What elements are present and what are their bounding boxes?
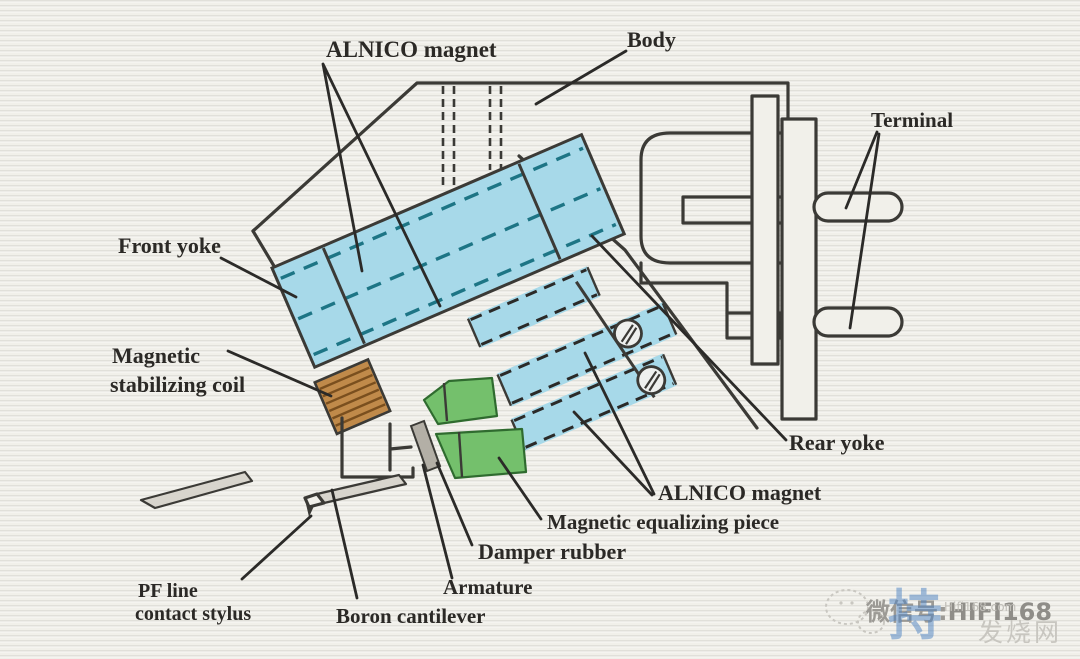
site-url-watermark-text: Hifi168.com (944, 600, 1016, 614)
wechat-bubble-large (826, 590, 868, 624)
magnetic-stabilizing-coil (315, 359, 390, 433)
site-name-text: 发烧网 (978, 618, 1062, 647)
body-left-edge (253, 231, 277, 271)
label-stylus-line2: contact stylus (135, 603, 251, 625)
label-body: Body (627, 27, 676, 52)
leader-armature (423, 465, 452, 578)
terminal-pin-top (814, 193, 902, 221)
stylus-guard-arm (141, 472, 252, 508)
label-alnico-magnet-bottom: ALNICO magnet (658, 480, 822, 505)
label-boron-cantilever: Boron cantilever (336, 604, 486, 628)
leader-stylus (242, 516, 311, 579)
magnetic-equalizing-piece-shape (436, 429, 526, 478)
label-stabilizing-coil-line2: stabilizing coil (110, 372, 245, 397)
label-damper-rubber: Damper rubber (478, 539, 626, 564)
cartridge-cutaway-diagram: ALNICO magnet Body Terminal Front yoke M… (0, 0, 1080, 659)
watermark: 微信号:HIFI168 Hifi168.com 发烧网 持 (826, 584, 1062, 647)
coil-body (315, 359, 390, 433)
armature-bar (411, 421, 440, 471)
label-stylus-line1: PF line (138, 580, 198, 602)
label-armature: Armature (443, 575, 532, 599)
label-alnico-magnet-top: ALNICO magnet (326, 37, 497, 62)
damper-rubber-upper (424, 378, 497, 424)
leader-boron-cantilever (332, 490, 357, 598)
leader-body (536, 51, 626, 104)
diagram-page: ALNICO magnet Body Terminal Front yoke M… (0, 0, 1080, 659)
terminal-outer-plate (782, 119, 816, 419)
label-stabilizing-coil-line1: Magnetic (112, 343, 200, 368)
terminal-inner-plate (752, 96, 778, 364)
label-front-yoke: Front yoke (118, 233, 221, 258)
label-terminal: Terminal (871, 108, 953, 132)
boron-cantilever-tube (317, 475, 406, 503)
terminal-pin-bottom (814, 308, 902, 336)
leader-terminal (846, 132, 879, 328)
wechat-eye (850, 601, 853, 604)
label-equalizing-piece: Magnetic equalizing piece (547, 510, 779, 534)
stamp-glyph: 持 (888, 584, 942, 647)
label-rear-yoke: Rear yoke (789, 430, 885, 455)
wechat-eye (839, 601, 842, 604)
